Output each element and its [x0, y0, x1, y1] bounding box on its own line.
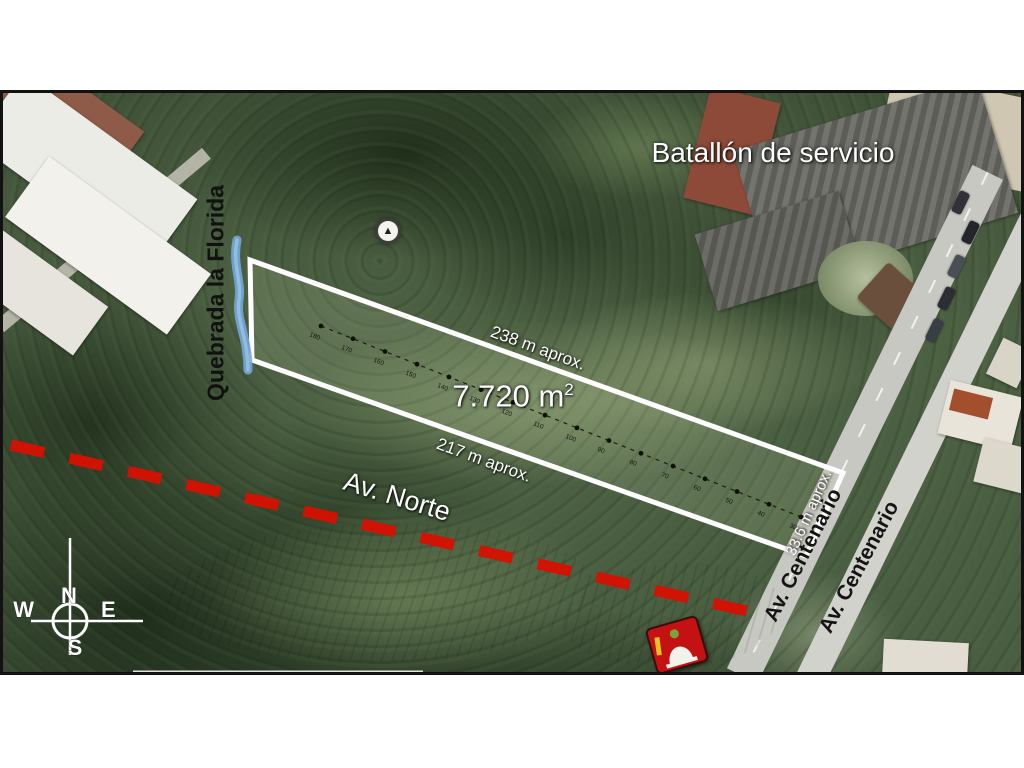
- measure-tick-dot: [383, 349, 388, 354]
- viewpoint-marker-icon: ▲: [375, 218, 401, 244]
- parcel-area-superscript: 2: [564, 380, 573, 399]
- parcel-area-value: 7.720 m: [452, 379, 564, 414]
- measure-tick-dot: [671, 464, 676, 469]
- measure-tick-dot: [415, 362, 420, 367]
- compass-rose-icon: N E S W: [13, 538, 143, 660]
- stream-label: Quebrada la Florida: [205, 185, 228, 401]
- compass-west-label: W: [13, 597, 34, 622]
- measure-tick-dot: [607, 438, 612, 443]
- satellite-photo: 1801701601501401301201101009080706050403…: [0, 90, 1024, 675]
- measure-tick-dot: [767, 502, 772, 507]
- parcel-area-label: 7.720 m2: [452, 381, 574, 412]
- compass-east-label: E: [101, 597, 116, 622]
- measure-tick-dot: [351, 336, 356, 341]
- red-sign-green-mark: [669, 628, 680, 639]
- measure-tick-dot: [639, 451, 644, 456]
- measure-tick-dot: [319, 324, 324, 329]
- measure-tick-dot: [447, 375, 452, 380]
- battalion-label: Batallón de servicio: [652, 139, 895, 167]
- measure-tick-dot: [575, 425, 580, 430]
- measure-tick-dot: [703, 476, 708, 481]
- compass-north-label: N: [61, 583, 77, 608]
- compass-south-label: S: [68, 635, 83, 660]
- red-sign-yellow-mark: [654, 637, 661, 656]
- measure-tick-dot: [735, 489, 740, 494]
